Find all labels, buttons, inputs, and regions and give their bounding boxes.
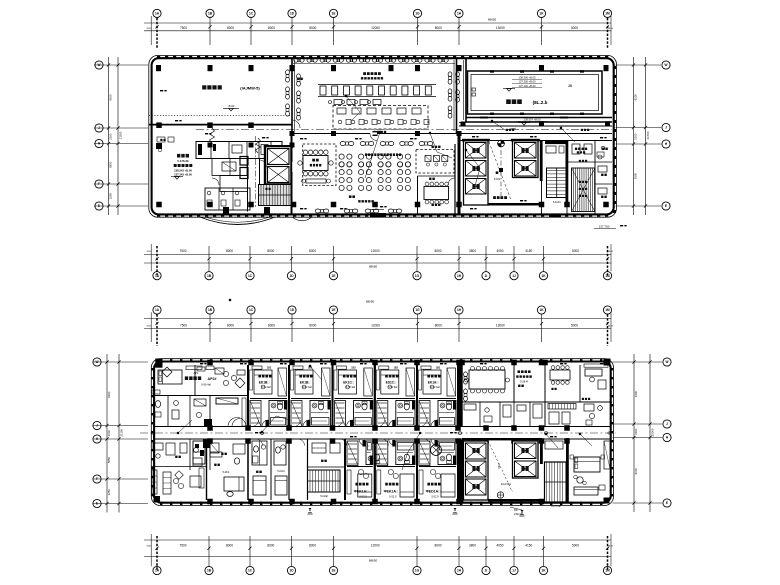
svg-text:1G: 1G <box>415 274 420 278</box>
svg-text:1M: 1M <box>605 12 610 16</box>
svg-text:1D: 1D <box>290 12 295 16</box>
svg-text:5-52.9: 5-52.9 <box>431 495 439 498</box>
svg-text:4050: 4050 <box>496 544 503 548</box>
svg-text:1B: 1B <box>207 274 212 278</box>
svg-text:E: E <box>96 502 98 506</box>
svg-text:1I: 1I <box>485 569 488 573</box>
svg-text:8000: 8000 <box>309 249 316 253</box>
svg-text:137.140 +B.00: 137.140 +B.00 <box>519 84 537 88</box>
svg-text:2100: 2100 <box>109 133 113 140</box>
svg-text:5-52.9: 5-52.9 <box>389 495 397 498</box>
svg-text:5-28.4: 5-28.4 <box>223 471 230 474</box>
svg-text:1G: 1G <box>415 569 420 573</box>
svg-text:68650: 68650 <box>369 265 378 269</box>
svg-text:8000: 8000 <box>227 324 234 328</box>
svg-text:1H: 1H <box>457 12 462 16</box>
svg-text:137.700: 137.700 <box>599 225 610 229</box>
svg-text:5-116m: 5-116m <box>553 201 561 204</box>
svg-text:1B: 1B <box>208 308 213 312</box>
svg-text:9100: 9100 <box>634 390 638 397</box>
svg-text:5-52.9af: 5-52.9af <box>388 386 397 389</box>
svg-text:5-52.9af: 5-52.9af <box>302 386 311 389</box>
svg-text:J: J <box>665 126 667 130</box>
svg-text:W: W <box>95 360 98 364</box>
svg-text:1M: 1M <box>605 569 610 573</box>
svg-text:1M: 1M <box>605 308 610 312</box>
svg-text:1K: 1K <box>541 569 546 573</box>
svg-text:7500: 7500 <box>179 249 186 253</box>
svg-text:3250: 3250 <box>107 489 111 496</box>
svg-text:8100: 8100 <box>608 251 614 253</box>
svg-text:137.300 +B.00: 137.300 +B.00 <box>519 80 537 84</box>
svg-text:8100: 8100 <box>634 172 638 179</box>
svg-text:1G: 1G <box>415 308 420 312</box>
svg-text:ФEK1A□: ФEK1A□ <box>384 490 399 494</box>
svg-text:1E: 1E <box>332 12 336 16</box>
svg-text:137.343 +B.00: 137.343 +B.00 <box>174 173 192 177</box>
svg-text:F: F <box>96 477 98 481</box>
svg-text:7500: 7500 <box>180 324 187 328</box>
svg-text:ФED1A□: ФED1A□ <box>426 490 441 494</box>
svg-text:5-96.4af: 5-96.4af <box>201 383 211 387</box>
svg-text:12000: 12000 <box>371 544 380 548</box>
svg-text:1E: 1E <box>332 274 336 278</box>
svg-text:5-52.9af: 5-52.9af <box>346 386 355 389</box>
svg-text:1K: 1K <box>539 12 544 16</box>
svg-text:1B: 1B <box>207 569 212 573</box>
svg-text:2100: 2100 <box>634 428 638 435</box>
svg-text:25x4: 25x4 <box>498 463 501 469</box>
svg-text:1E: 1E <box>332 308 336 312</box>
svg-text:8100: 8100 <box>608 546 614 548</box>
svg-text:138.300 +B.00: 138.300 +B.00 <box>519 76 537 80</box>
svg-text:1B2: 1B2 <box>436 367 441 370</box>
svg-text:68650: 68650 <box>488 18 497 22</box>
svg-text:3250: 3250 <box>109 192 113 199</box>
svg-text:21100: 21100 <box>119 429 123 437</box>
svg-text:9100: 9100 <box>107 391 111 398</box>
svg-text:8000: 8000 <box>268 26 275 30</box>
svg-text:1B2: 1B2 <box>267 367 272 370</box>
svg-text:20x4.5KG: 20x4.5KG <box>501 484 511 486</box>
svg-text:8000: 8000 <box>226 249 233 253</box>
svg-text:22000: 22000 <box>650 428 654 436</box>
svg-text:8000: 8000 <box>309 324 316 328</box>
svg-text:J: J <box>98 126 100 130</box>
svg-text:3800: 3800 <box>469 249 476 253</box>
svg-text:2XE.M7: 2XE.M7 <box>514 512 524 516</box>
svg-text:2100: 2100 <box>107 430 111 437</box>
svg-text:J: J <box>96 424 98 428</box>
svg-text:1D: 1D <box>289 274 294 278</box>
svg-text:W: W <box>664 63 667 67</box>
svg-text:12000: 12000 <box>371 249 380 253</box>
svg-text:138.243 +B.00: 138.243 +B.00 <box>174 169 192 173</box>
svg-text:5-0Lb4: 5-0Lb4 <box>277 471 285 473</box>
svg-text:8100: 8100 <box>147 546 153 548</box>
svg-text:4150: 4150 <box>525 249 532 253</box>
svg-text:9100: 9100 <box>634 94 638 101</box>
svg-text:W: W <box>97 63 100 67</box>
svg-text:8000: 8000 <box>309 544 316 548</box>
svg-text:EK1A□: EK1A□ <box>428 381 439 385</box>
svg-text:5-52.9af: 5-52.9af <box>430 386 439 389</box>
svg-text:1A: 1A <box>155 308 160 312</box>
svg-text:5000: 5000 <box>571 26 578 30</box>
svg-text:4050: 4050 <box>496 249 503 253</box>
svg-text:1D: 1D <box>289 569 294 573</box>
svg-text:5850: 5850 <box>109 161 113 168</box>
svg-text:5850: 5850 <box>107 456 111 463</box>
svg-text:(lAJMW-5): (lAJMW-5) <box>240 86 260 91</box>
svg-text:F: F <box>98 182 100 186</box>
svg-text:13000: 13000 <box>496 26 505 30</box>
svg-text:8000: 8000 <box>267 249 274 253</box>
svg-text:8-162: 8-162 <box>494 178 501 181</box>
svg-text:5-176.3b: 5-176.3b <box>177 159 188 163</box>
svg-text:8000: 8000 <box>434 544 441 548</box>
svg-text:5000: 5000 <box>572 249 579 253</box>
svg-text:1A: 1A <box>155 569 160 573</box>
svg-text:8000: 8000 <box>435 26 442 30</box>
svg-text:68650: 68650 <box>369 559 378 563</box>
svg-text:1G: 1G <box>415 12 420 16</box>
svg-text:1C: 1C <box>249 12 254 16</box>
svg-text:1E: 1E <box>332 569 336 573</box>
svg-text:8000: 8000 <box>268 324 275 328</box>
svg-text:8100: 8100 <box>147 28 153 30</box>
svg-text:8100: 8100 <box>147 326 153 328</box>
svg-text:21700: 21700 <box>646 131 650 139</box>
svg-text:1H: 1H <box>457 274 462 278</box>
svg-text:7500: 7500 <box>180 26 187 30</box>
svg-text:1M: 1M <box>605 274 610 278</box>
svg-text:8000: 8000 <box>435 324 442 328</box>
svg-text:2100: 2100 <box>634 133 638 140</box>
svg-text:5-52.9af: 5-52.9af <box>261 386 270 389</box>
svg-text:5-116af: 5-116af <box>320 496 328 498</box>
svg-text:8100: 8100 <box>147 251 153 253</box>
svg-text:J: J <box>666 422 668 426</box>
svg-text:1I: 1I <box>485 274 488 278</box>
svg-text:8100: 8100 <box>608 326 614 328</box>
svg-text:7500: 7500 <box>179 544 186 548</box>
svg-text:8000: 8000 <box>434 249 441 253</box>
svg-text:EK1B□: EK1B□ <box>300 381 311 385</box>
svg-text:12000: 12000 <box>371 324 380 328</box>
svg-text:1A: 1A <box>155 274 160 278</box>
svg-text:8000: 8000 <box>226 544 233 548</box>
svg-text:5-28.4f: 5-28.4f <box>520 380 528 383</box>
svg-text:E: E <box>98 204 100 208</box>
svg-text:1C: 1C <box>249 308 254 312</box>
svg-text:1D: 1D <box>290 308 295 312</box>
svg-text:8000: 8000 <box>309 26 316 30</box>
svg-text:8100: 8100 <box>608 28 614 30</box>
svg-text:E: E <box>666 501 668 505</box>
svg-text:3800: 3800 <box>469 544 476 548</box>
svg-text:1J: 1J <box>512 274 516 278</box>
svg-text:1-117.6af: 1-117.6af <box>551 506 561 508</box>
svg-text:1J: 1J <box>512 569 516 573</box>
svg-text:1B2: 1B2 <box>351 367 356 370</box>
svg-text:AP1: AP1 <box>194 371 199 375</box>
svg-text:68650: 68650 <box>366 300 375 304</box>
svg-text:8000: 8000 <box>227 26 234 30</box>
svg-text:1K: 1K <box>541 274 546 278</box>
svg-text:5000: 5000 <box>572 544 579 548</box>
svg-text:21100: 21100 <box>118 131 122 139</box>
svg-text:138.597 +B.00: 138.597 +B.00 <box>524 118 542 122</box>
svg-text:4150: 4150 <box>525 544 532 548</box>
svg-text:8000: 8000 <box>267 544 274 548</box>
svg-text:ФEK1A□: ФEK1A□ <box>354 490 369 494</box>
svg-text:1H: 1H <box>457 308 462 312</box>
svg-text:5-52.9: 5-52.9 <box>359 495 367 498</box>
svg-text:1B: 1B <box>208 12 213 16</box>
svg-text:1K: 1K <box>539 308 544 312</box>
svg-text:ED1B□: ED1B□ <box>259 381 270 385</box>
svg-text:13000: 13000 <box>496 324 505 328</box>
svg-text:ED1C□: ED1C□ <box>386 381 397 385</box>
svg-text:AP2#: AP2# <box>208 377 217 381</box>
svg-text:1C: 1C <box>248 569 253 573</box>
svg-text:9100: 9100 <box>109 94 113 101</box>
svg-text:1C: 1C <box>248 274 253 278</box>
svg-text:E: E <box>665 204 667 208</box>
svg-text:1A: 1A <box>155 12 160 16</box>
svg-text:1H: 1H <box>457 569 462 573</box>
svg-text:-B.00: -B.00 <box>228 104 235 108</box>
svg-text:8100: 8100 <box>634 468 638 475</box>
svg-text:1B2: 1B2 <box>394 367 399 370</box>
svg-text:12000: 12000 <box>371 26 380 30</box>
svg-text:W: W <box>665 360 668 364</box>
svg-text:5000: 5000 <box>571 324 578 328</box>
svg-text:EK1C□: EK1C□ <box>343 381 354 385</box>
svg-text:(8L.2.b: (8L.2.b <box>533 100 548 105</box>
